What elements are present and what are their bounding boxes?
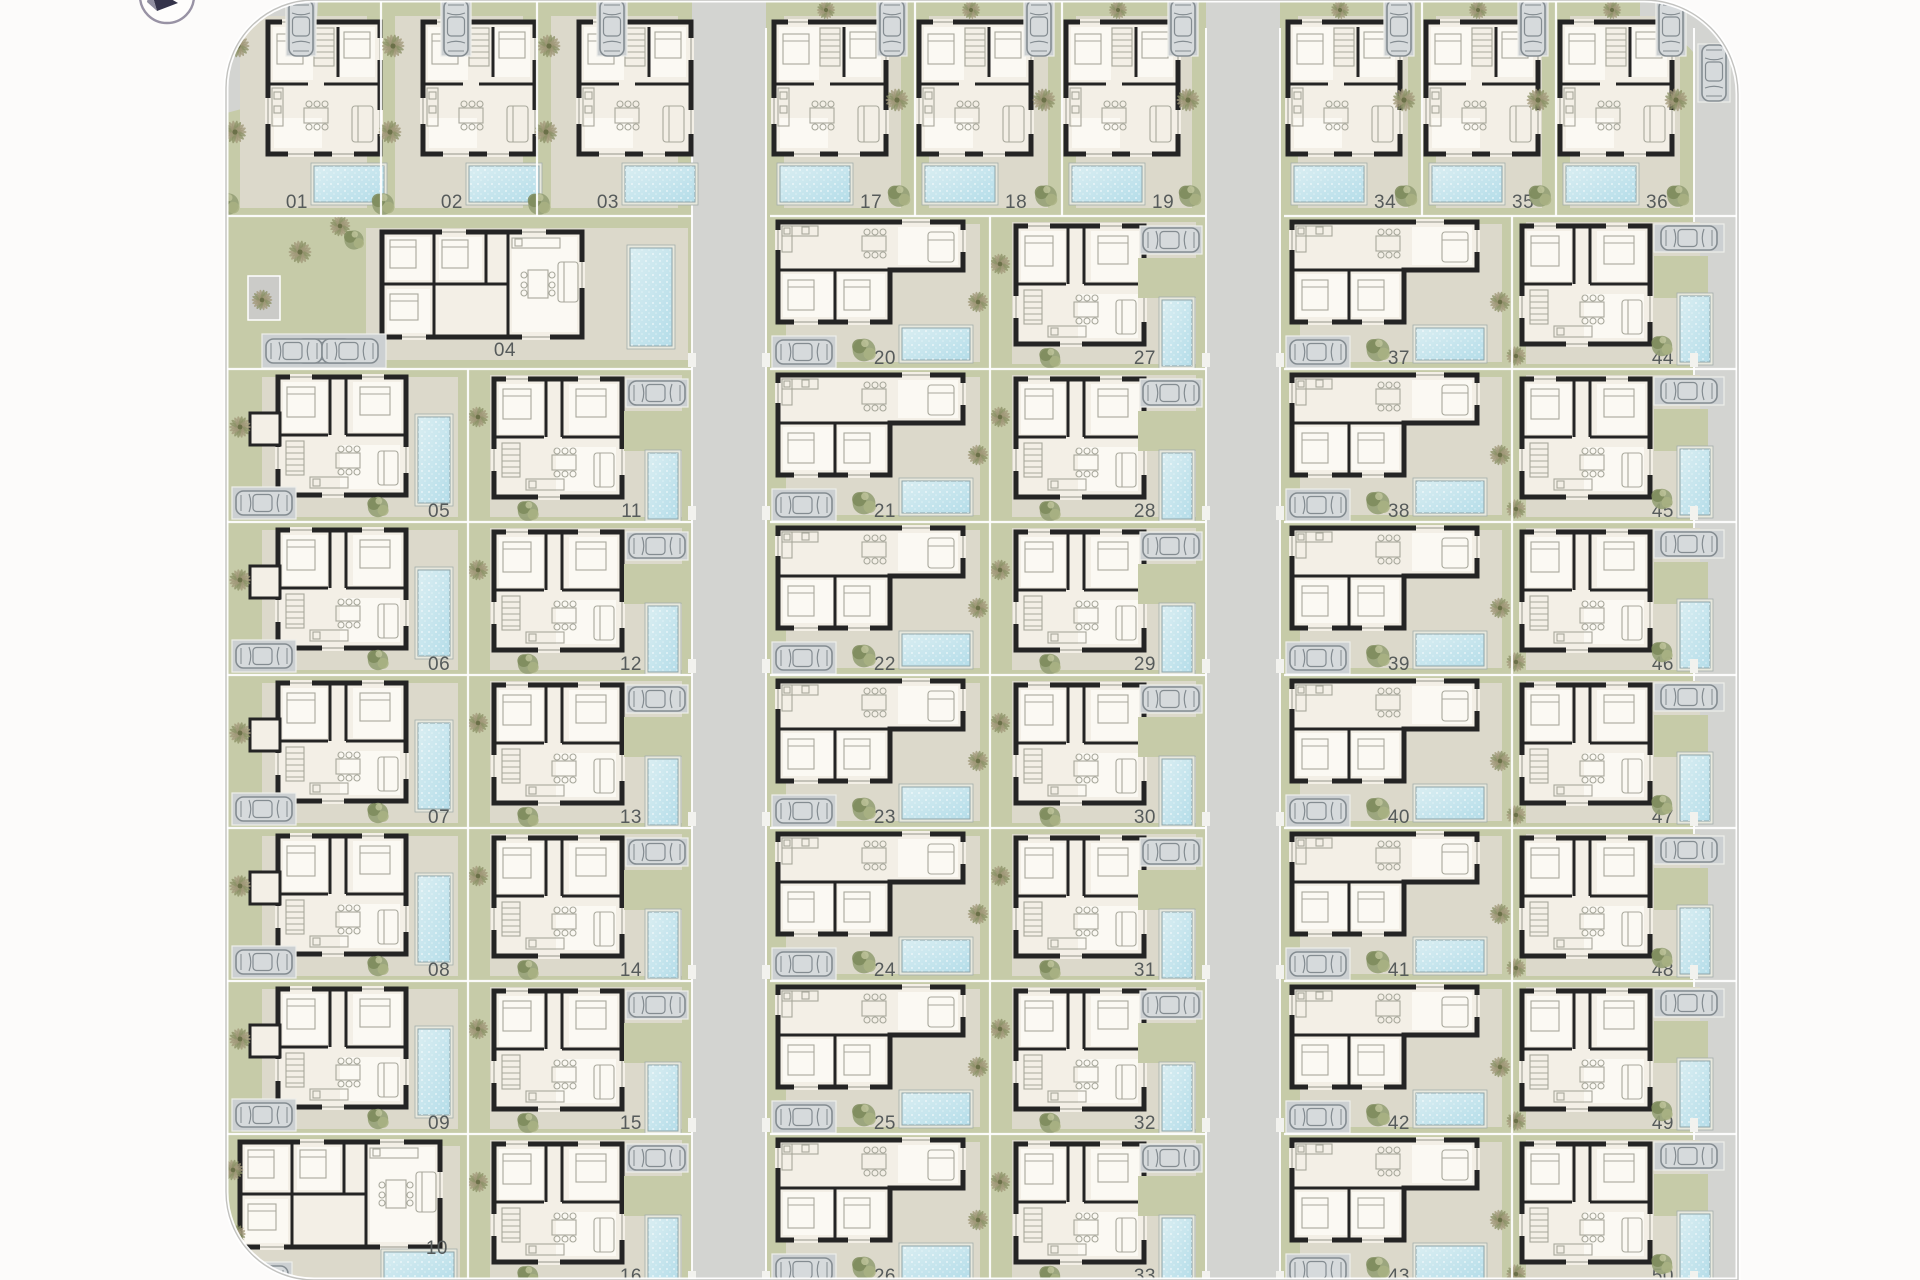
parking-pad [626, 379, 688, 407]
swimming-pool [415, 567, 453, 659]
house-floorplan [1560, 22, 1672, 154]
house-floorplan [1016, 838, 1144, 956]
plot-41[interactable]: 41 [1286, 834, 1510, 981]
parked-car-icon [1290, 1105, 1346, 1129]
plot-39[interactable]: 39 [1286, 528, 1510, 675]
plot-37[interactable]: 37 [1286, 222, 1510, 369]
parking-pad [626, 685, 688, 713]
parking-pad [286, 0, 316, 56]
house-floorplan [1522, 532, 1650, 650]
parking-pad [772, 795, 836, 827]
plot-number-label: 21 [874, 501, 896, 522]
plot-17[interactable]: 17 [774, 0, 910, 213]
parking-pad [228, 1262, 292, 1280]
house-floorplan [494, 1144, 622, 1262]
parked-car-icon [236, 1103, 292, 1127]
plot-number-label: 07 [428, 807, 450, 828]
parking-pad [1286, 795, 1350, 827]
plot-number-label: 30 [1134, 807, 1156, 828]
parked-car-icon [1290, 952, 1346, 976]
parked-car-icon [629, 534, 685, 558]
plot-09[interactable]: 09 [229, 989, 458, 1134]
plot-number-label: 09 [428, 1113, 450, 1134]
plot-27[interactable]: 27 [990, 222, 1202, 369]
parked-car-icon [1661, 991, 1717, 1015]
swimming-pool [1159, 909, 1195, 981]
parked-car-icon [1661, 838, 1717, 862]
house-floorplan [1288, 22, 1400, 154]
plot-number-label: 41 [1388, 960, 1410, 981]
parking-pad [1286, 336, 1350, 368]
house-floorplan [1522, 991, 1650, 1109]
parking-pad [1654, 530, 1724, 558]
house-floorplan [494, 991, 622, 1109]
plot-12[interactable]: 12 [468, 528, 688, 675]
plot-number-label: 27 [1134, 348, 1156, 369]
house-floorplan [382, 232, 582, 337]
swimming-pool [1159, 756, 1195, 828]
parked-car-icon [776, 799, 832, 823]
swimming-pool [1413, 937, 1487, 975]
swimming-pool [1291, 163, 1367, 205]
swimming-pool [415, 873, 453, 965]
road-vertical-1 [692, 0, 766, 1280]
plot-number-label: 18 [1005, 192, 1027, 213]
plot-16[interactable]: 16 [468, 1140, 688, 1280]
plot-number-label: 23 [874, 807, 896, 828]
house-floorplan [278, 989, 406, 1107]
plot-number-label: 14 [620, 960, 642, 981]
road-vertical-2 [1206, 0, 1280, 1280]
plot-number-label: 24 [874, 960, 896, 981]
plot-43[interactable]: 43 [1286, 1140, 1510, 1280]
plot-number-label: 37 [1388, 348, 1410, 369]
parked-car-icon [629, 840, 685, 864]
swimming-pool [627, 245, 675, 349]
parking-pad [232, 946, 296, 978]
swimming-pool [1159, 450, 1195, 522]
plot-number-label: 20 [874, 348, 896, 369]
house-floorplan [240, 1142, 440, 1247]
plot-number-label: 01 [286, 192, 308, 213]
parking-pad [1654, 224, 1724, 252]
parking-pad [1654, 377, 1724, 405]
plot-28[interactable]: 28 [990, 375, 1202, 522]
parking-pad [1286, 948, 1350, 980]
house-floorplan [774, 22, 886, 154]
swimming-pool [415, 720, 453, 812]
parked-car-icon [289, 0, 313, 56]
parking-pad [772, 489, 836, 521]
parking-pad [772, 642, 836, 674]
parked-car-icon [776, 493, 832, 517]
house-floorplan [1066, 22, 1178, 154]
house-floorplan [494, 685, 622, 803]
swimming-pool [645, 603, 681, 675]
house-floorplan [1016, 1144, 1144, 1262]
parking-pad [1286, 1254, 1350, 1280]
parking-pad [1654, 989, 1724, 1017]
parking-pad [626, 1144, 688, 1172]
swimming-pool [645, 756, 681, 828]
parking-pad [1168, 0, 1198, 56]
parked-car-icon [1661, 685, 1717, 709]
swimming-pool [1413, 1090, 1487, 1128]
swimming-pool [1413, 631, 1487, 669]
plot-number-label: 11 [621, 501, 642, 522]
plot-45[interactable]: 45 [1506, 375, 1724, 522]
swimming-pool [899, 631, 973, 669]
swimming-pool [415, 1026, 453, 1118]
house-floorplan [278, 530, 406, 648]
plot-number-label: 32 [1134, 1113, 1156, 1134]
parked-car-icon [1290, 1258, 1346, 1280]
plot-11[interactable]: 11 [468, 375, 688, 522]
parking-pad [772, 948, 836, 980]
north-compass-icon [140, 0, 194, 23]
parked-car-icon [1027, 0, 1051, 56]
plot-number-label: 29 [1134, 654, 1156, 675]
parked-car-icon [236, 644, 292, 668]
swimming-pool [777, 163, 853, 205]
house-floorplan [494, 838, 622, 956]
plot-06[interactable]: 06 [229, 530, 458, 675]
parked-car-icon [1290, 340, 1346, 364]
plot-number-label: 28 [1134, 501, 1156, 522]
parking-pad [1140, 226, 1202, 254]
parked-car-icon [236, 491, 292, 515]
plot-02[interactable]: 02 [372, 0, 542, 215]
swimming-pool [1429, 163, 1505, 205]
house-floorplan [278, 377, 406, 495]
plot-36[interactable]: 36 [1560, 0, 1689, 213]
parked-car-icon [1143, 534, 1199, 558]
plot-number-label: 39 [1388, 654, 1410, 675]
swimming-pool [1069, 163, 1145, 205]
plot-number-label: 38 [1388, 501, 1410, 522]
plot-49[interactable]: 49 [1506, 987, 1724, 1134]
parking-pad [441, 0, 471, 56]
swimming-pool [1159, 1215, 1195, 1280]
parked-car-icon [1521, 0, 1545, 56]
parked-car-icon [1387, 0, 1411, 56]
plot-number-label: 17 [860, 192, 882, 213]
plot-number-label: 40 [1388, 807, 1410, 828]
parking-pad [877, 0, 907, 56]
plot-38[interactable]: 38 [1286, 375, 1510, 522]
parking-pad [232, 1099, 296, 1131]
parking-pad [1518, 0, 1548, 56]
parked-car-icon [776, 1258, 832, 1280]
plot-29[interactable]: 29 [990, 528, 1202, 675]
plot-05[interactable]: 05 [229, 377, 458, 522]
house-floorplan [423, 22, 535, 154]
house-floorplan [1016, 685, 1144, 803]
swimming-pool [1413, 325, 1487, 363]
parking-pad [1654, 1142, 1724, 1170]
parking-pad [232, 793, 296, 825]
house-floorplan [278, 683, 406, 801]
parked-car-icon [629, 1146, 685, 1170]
parked-car-icon [776, 646, 832, 670]
plot-number-label: 04 [494, 340, 516, 361]
parking-pad [1140, 532, 1202, 560]
parked-car-icon [776, 952, 832, 976]
plot-25[interactable]: 25 [772, 987, 988, 1134]
swimming-pool [645, 1215, 681, 1280]
plot-number-label: 08 [428, 960, 450, 981]
parked-car-icon [1661, 532, 1717, 556]
house-floorplan [1522, 838, 1650, 956]
parked-car-icon [236, 950, 292, 974]
plot-22[interactable]: 22 [772, 528, 988, 675]
parking-pad [597, 0, 627, 56]
parking-pad [626, 991, 688, 1019]
plot-03[interactable]: 03 [528, 0, 698, 215]
plot-14[interactable]: 14 [468, 834, 688, 981]
parked-car-icon [322, 339, 378, 363]
plot-number-label: 02 [441, 192, 463, 213]
plot-18[interactable]: 18 [919, 0, 1057, 213]
house-floorplan [268, 22, 380, 154]
parking-pad [626, 532, 688, 560]
plot-number-label: 06 [428, 654, 450, 675]
swimming-pool [899, 478, 973, 516]
plot-number-label: 15 [620, 1113, 642, 1134]
house-floorplan [278, 836, 406, 954]
plot-34[interactable]: 34 [1288, 0, 1417, 213]
parking-pad [626, 838, 688, 866]
plot-23[interactable]: 23 [772, 681, 988, 828]
plot-40[interactable]: 40 [1286, 681, 1510, 828]
parked-car-icon [1143, 687, 1199, 711]
plot-31[interactable]: 31 [990, 834, 1202, 981]
parked-car-icon [629, 993, 685, 1017]
house-floorplan [1016, 379, 1144, 497]
parking-pad [772, 1101, 836, 1133]
plot-07[interactable]: 07 [229, 683, 458, 828]
house-floorplan [1016, 226, 1144, 344]
swimming-pool [1413, 478, 1487, 516]
plot-number-label: 36 [1646, 192, 1668, 213]
plot-35[interactable]: 35 [1426, 0, 1551, 213]
parking-pad [1140, 379, 1202, 407]
plot-20[interactable]: 20 [772, 222, 988, 369]
swimming-pool [645, 1062, 681, 1134]
plot-48[interactable]: 48 [1506, 834, 1724, 981]
parking-pad [1140, 838, 1202, 866]
plot-30[interactable]: 30 [990, 681, 1202, 828]
parked-car-icon [1702, 45, 1726, 101]
plot-number-label: 10 [426, 1238, 448, 1259]
house-floorplan [579, 22, 691, 154]
site-plan-page: 0102031718193435360405060708091011121314… [0, 0, 1920, 1280]
parked-car-icon [629, 381, 685, 405]
plot-47[interactable]: 47 [1506, 681, 1724, 828]
parking-pad [1698, 44, 1730, 102]
parked-car-icon [266, 339, 322, 363]
swimming-pool [899, 784, 973, 822]
swimming-pool [1413, 1243, 1487, 1280]
plot-number-label: 12 [620, 654, 642, 675]
plot-46[interactable]: 46 [1506, 528, 1724, 675]
swimming-pool [899, 1090, 973, 1128]
parked-car-icon [776, 1105, 832, 1129]
parked-car-icon [236, 797, 292, 821]
plot-15[interactable]: 15 [468, 987, 688, 1134]
site-plan-svg: 0102031718193435360405060708091011121314… [0, 0, 1920, 1280]
plot-number-label: 34 [1374, 192, 1396, 213]
swimming-pool [899, 1243, 973, 1280]
plot-number-label: 31 [1134, 960, 1156, 981]
house-floorplan [494, 379, 622, 497]
parking-pad [1286, 489, 1350, 521]
swimming-pool [922, 163, 998, 205]
swimming-pool [645, 909, 681, 981]
parked-car-icon [880, 0, 904, 56]
swimming-pool [622, 163, 698, 205]
house-floorplan [494, 532, 622, 650]
plot-32[interactable]: 32 [990, 987, 1202, 1134]
parked-car-icon [1661, 226, 1717, 250]
plot-number-label: 25 [874, 1113, 896, 1134]
plot-44[interactable]: 44 [1506, 222, 1724, 369]
house-floorplan [1522, 1144, 1650, 1262]
parked-car-icon [1290, 799, 1346, 823]
parked-car-icon [1290, 646, 1346, 670]
parking-pad [1140, 991, 1202, 1019]
plot-number-label: 03 [597, 192, 619, 213]
parking-pad [1384, 0, 1414, 56]
plot-01[interactable]: 01 [217, 0, 387, 215]
parked-car-icon [1143, 381, 1199, 405]
plot-50[interactable]: 50 [1506, 1140, 1724, 1280]
house-floorplan [1016, 991, 1144, 1109]
plot-13[interactable]: 13 [468, 681, 688, 828]
house-floorplan [1522, 379, 1650, 497]
parked-car-icon [629, 687, 685, 711]
parking-pad [772, 336, 836, 368]
swimming-pool [1159, 603, 1195, 675]
plot-number-label: 13 [620, 807, 642, 828]
parked-car-icon [776, 340, 832, 364]
parked-car-icon [1290, 493, 1346, 517]
plot-24[interactable]: 24 [772, 834, 988, 981]
house-floorplan [1522, 685, 1650, 803]
parking-pad [1286, 642, 1350, 674]
plot-number-label: 05 [428, 501, 450, 522]
parked-car-icon [444, 0, 468, 56]
parked-car-icon [1143, 840, 1199, 864]
parked-car-icon [1143, 1146, 1199, 1170]
swimming-pool [415, 414, 453, 506]
parking-pad [1654, 836, 1724, 864]
parked-car-icon [1661, 1144, 1717, 1168]
swimming-pool [1159, 297, 1195, 369]
swimming-pool [1563, 163, 1639, 205]
house-floorplan [1016, 532, 1144, 650]
parking-pad [1024, 0, 1054, 56]
parking-pad [232, 640, 296, 672]
swimming-pool [1159, 1062, 1195, 1134]
parked-car-icon [1661, 379, 1717, 403]
parked-car-icon [1171, 0, 1195, 56]
plot-19[interactable]: 19 [1066, 0, 1201, 213]
parking-pad [1654, 683, 1724, 711]
plot-08[interactable]: 08 [229, 836, 458, 981]
plot-42[interactable]: 42 [1286, 987, 1510, 1134]
plot-21[interactable]: 21 [772, 375, 988, 522]
swimming-pool [645, 450, 681, 522]
plot-number-label: 22 [874, 654, 896, 675]
parking-pad [1286, 1101, 1350, 1133]
parking-pad [1140, 1144, 1202, 1172]
plot-number-label: 42 [1388, 1113, 1410, 1134]
house-floorplan [1522, 226, 1650, 344]
parked-car-icon [1143, 993, 1199, 1017]
house-floorplan [919, 22, 1031, 154]
swimming-pool [1677, 1211, 1713, 1280]
parking-pad [232, 487, 296, 519]
parking-pad [1140, 685, 1202, 713]
plot-26[interactable]: 26 [772, 1140, 988, 1280]
parked-car-icon [1143, 228, 1199, 252]
plot-number-label: 19 [1152, 192, 1174, 213]
plot-33[interactable]: 33 [990, 1140, 1202, 1280]
swimming-pool [1413, 784, 1487, 822]
swimming-pool [899, 325, 973, 363]
swimming-pool [899, 937, 973, 975]
parked-car-icon [600, 0, 624, 56]
parking-pad [772, 1254, 836, 1280]
